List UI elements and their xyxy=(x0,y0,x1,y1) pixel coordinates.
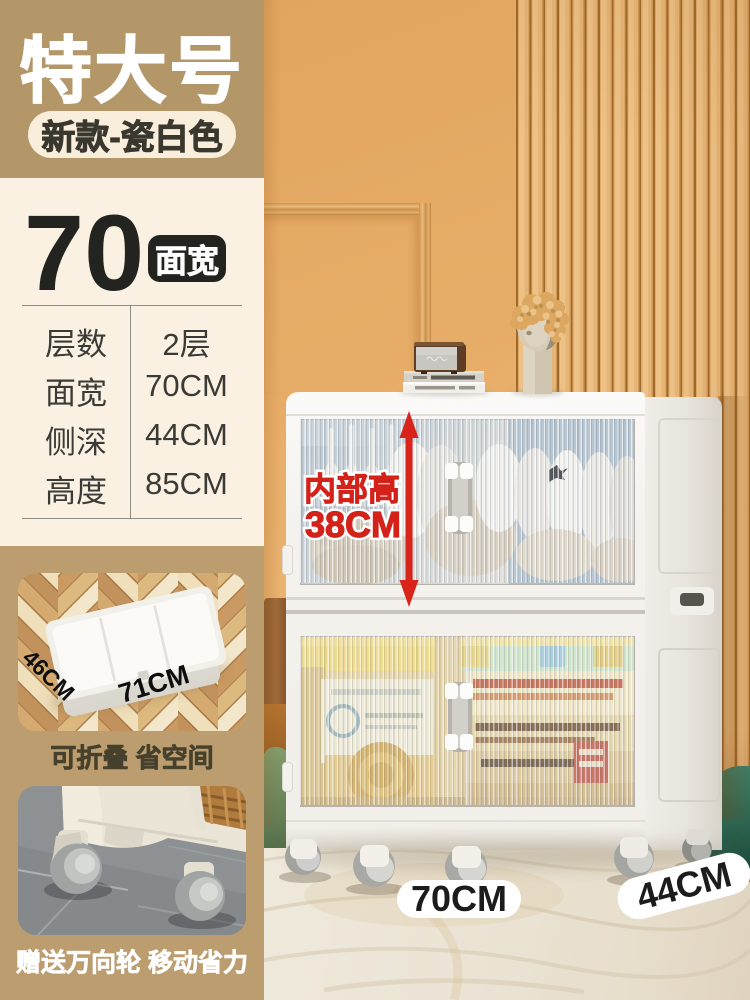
svg-text:内部高: 内部高 xyxy=(304,471,400,507)
svg-text:38CM: 38CM xyxy=(305,504,401,545)
